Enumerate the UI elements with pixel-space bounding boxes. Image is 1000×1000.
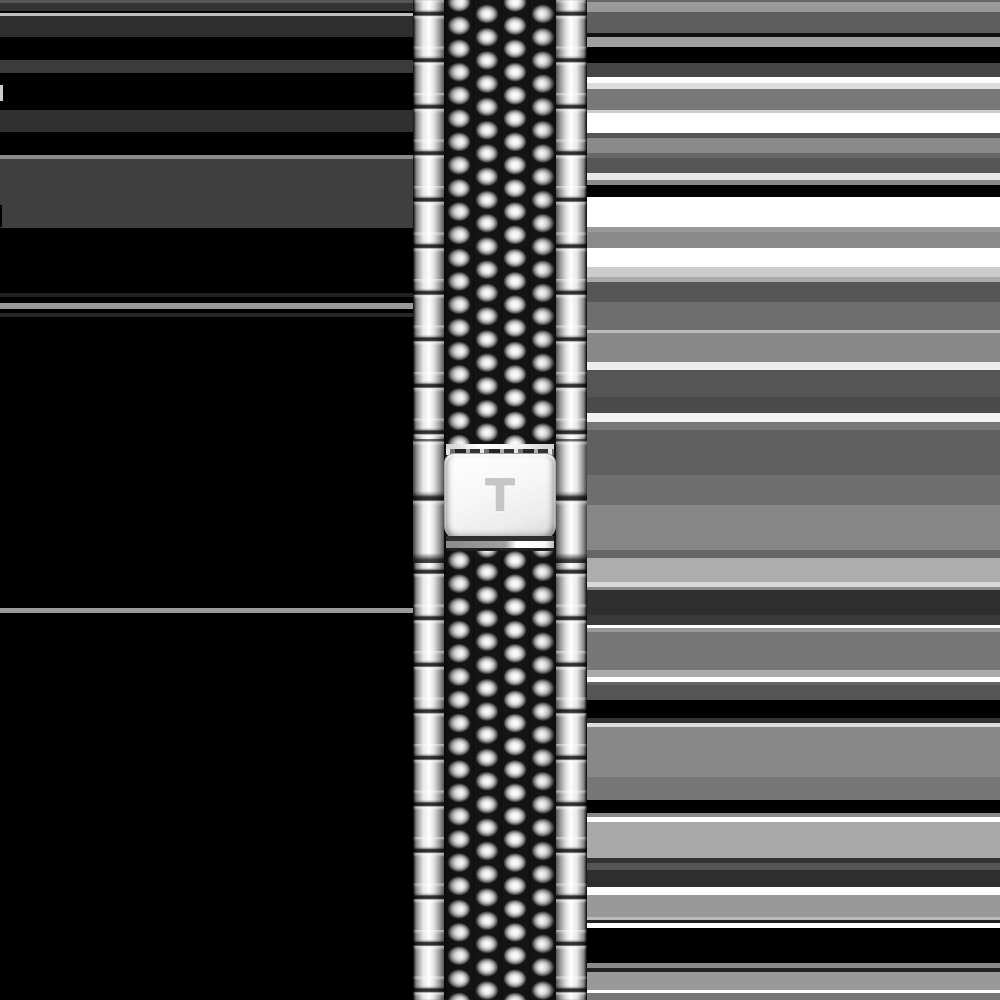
background-smear-left: [0, 0, 413, 1000]
background-smear-right: [587, 0, 1000, 1000]
smear-band: [587, 700, 1000, 718]
smear-band: [587, 232, 1000, 248]
clasp-plate: T: [444, 453, 556, 539]
smear-band: [587, 12, 1000, 33]
smear-band: [587, 632, 1000, 670]
smear-band: [587, 333, 1000, 362]
smear-band: [587, 615, 1000, 625]
smear-band: [587, 777, 1000, 800]
smear-band: [587, 197, 1000, 227]
smear-band: [587, 505, 1000, 550]
smear-band: [587, 550, 1000, 558]
tissot-t-logo: T: [485, 475, 515, 519]
smear-band: [0, 608, 413, 613]
smear-band: [587, 63, 1000, 77]
clasp-side-link-left: [413, 439, 444, 563]
smear-band: [587, 362, 1000, 370]
smear-band: [0, 313, 413, 317]
smear-band: [587, 863, 1000, 870]
watch-bracelet: T: [413, 0, 587, 1000]
smear-band: [587, 972, 1000, 990]
smear-band: [587, 475, 1000, 505]
clasp-hinge-bottom: [446, 536, 554, 551]
smear-band: [587, 89, 1000, 110]
smear-band: [0, 3, 413, 11]
smear-band: [587, 870, 1000, 887]
smear-band: [587, 590, 1000, 615]
smear-band: [587, 800, 1000, 813]
smear-band: [0, 159, 413, 228]
smear-band: [587, 422, 1000, 430]
smear-band: [0, 16, 413, 37]
smear-band: [587, 158, 1000, 173]
smear-band: [587, 302, 1000, 330]
smear-band: [587, 37, 1000, 47]
smear-band: [587, 397, 1000, 413]
smear-band: [0, 205, 2, 227]
hinge-metal-bar: [446, 541, 554, 548]
smear-band: [587, 370, 1000, 397]
smear-band: [587, 558, 1000, 582]
smear-band: [0, 60, 413, 73]
smear-band: [587, 670, 1000, 677]
hinge-shadow-line-2: [446, 548, 554, 551]
smear-band: [587, 248, 1000, 267]
smear-band: [0, 110, 413, 132]
smear-band: [587, 887, 1000, 895]
smear-band: [587, 928, 1000, 963]
smear-band: [587, 993, 1000, 1000]
clasp-side-link-right: [556, 439, 587, 563]
smear-band: [587, 727, 1000, 777]
smear-band: [587, 173, 1000, 180]
product-image: T: [0, 0, 1000, 1000]
smear-band: [587, 282, 1000, 302]
smear-band: [0, 85, 3, 101]
smear-band: [587, 113, 1000, 133]
smear-band: [587, 138, 1000, 153]
smear-band: [587, 185, 1000, 197]
smear-band: [587, 413, 1000, 422]
smear-band: [587, 430, 1000, 475]
smear-band: [587, 267, 1000, 277]
smear-band: [587, 47, 1000, 63]
smear-band: [0, 293, 413, 297]
smear-band: [587, 822, 1000, 858]
smear-band: [587, 2, 1000, 12]
smear-band: [587, 685, 1000, 700]
smear-band: [587, 895, 1000, 917]
smear-band: [0, 303, 413, 309]
